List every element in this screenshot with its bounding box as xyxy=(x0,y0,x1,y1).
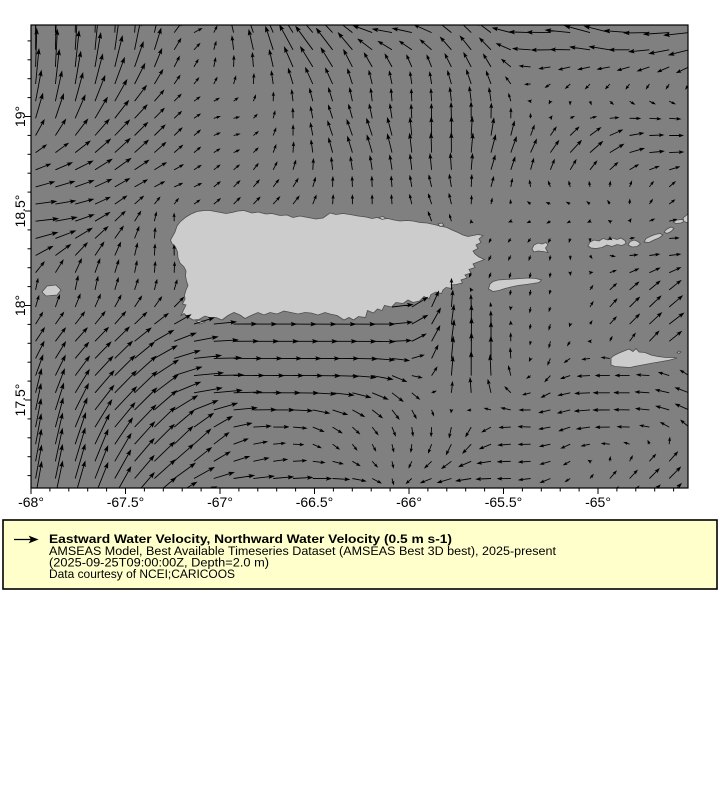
svg-text:-68°: -68° xyxy=(18,494,44,510)
svg-text:-65°: -65° xyxy=(585,494,611,510)
svg-text:-66.5°: -66.5° xyxy=(296,494,334,510)
svg-text:18.5°: 18.5° xyxy=(12,195,28,228)
svg-text:19°: 19° xyxy=(12,106,28,127)
svg-text:-67.5°: -67.5° xyxy=(107,494,145,510)
svg-text:-65.5°: -65.5° xyxy=(485,494,523,510)
svg-text:-67°: -67° xyxy=(207,494,233,510)
svg-text:-66°: -66° xyxy=(396,494,422,510)
svg-text:Data courtesy of NCEI;CARICOOS: Data courtesy of NCEI;CARICOOS xyxy=(49,567,235,581)
svg-text:18°: 18° xyxy=(12,295,28,316)
svg-text:17.5°: 17.5° xyxy=(12,384,28,417)
